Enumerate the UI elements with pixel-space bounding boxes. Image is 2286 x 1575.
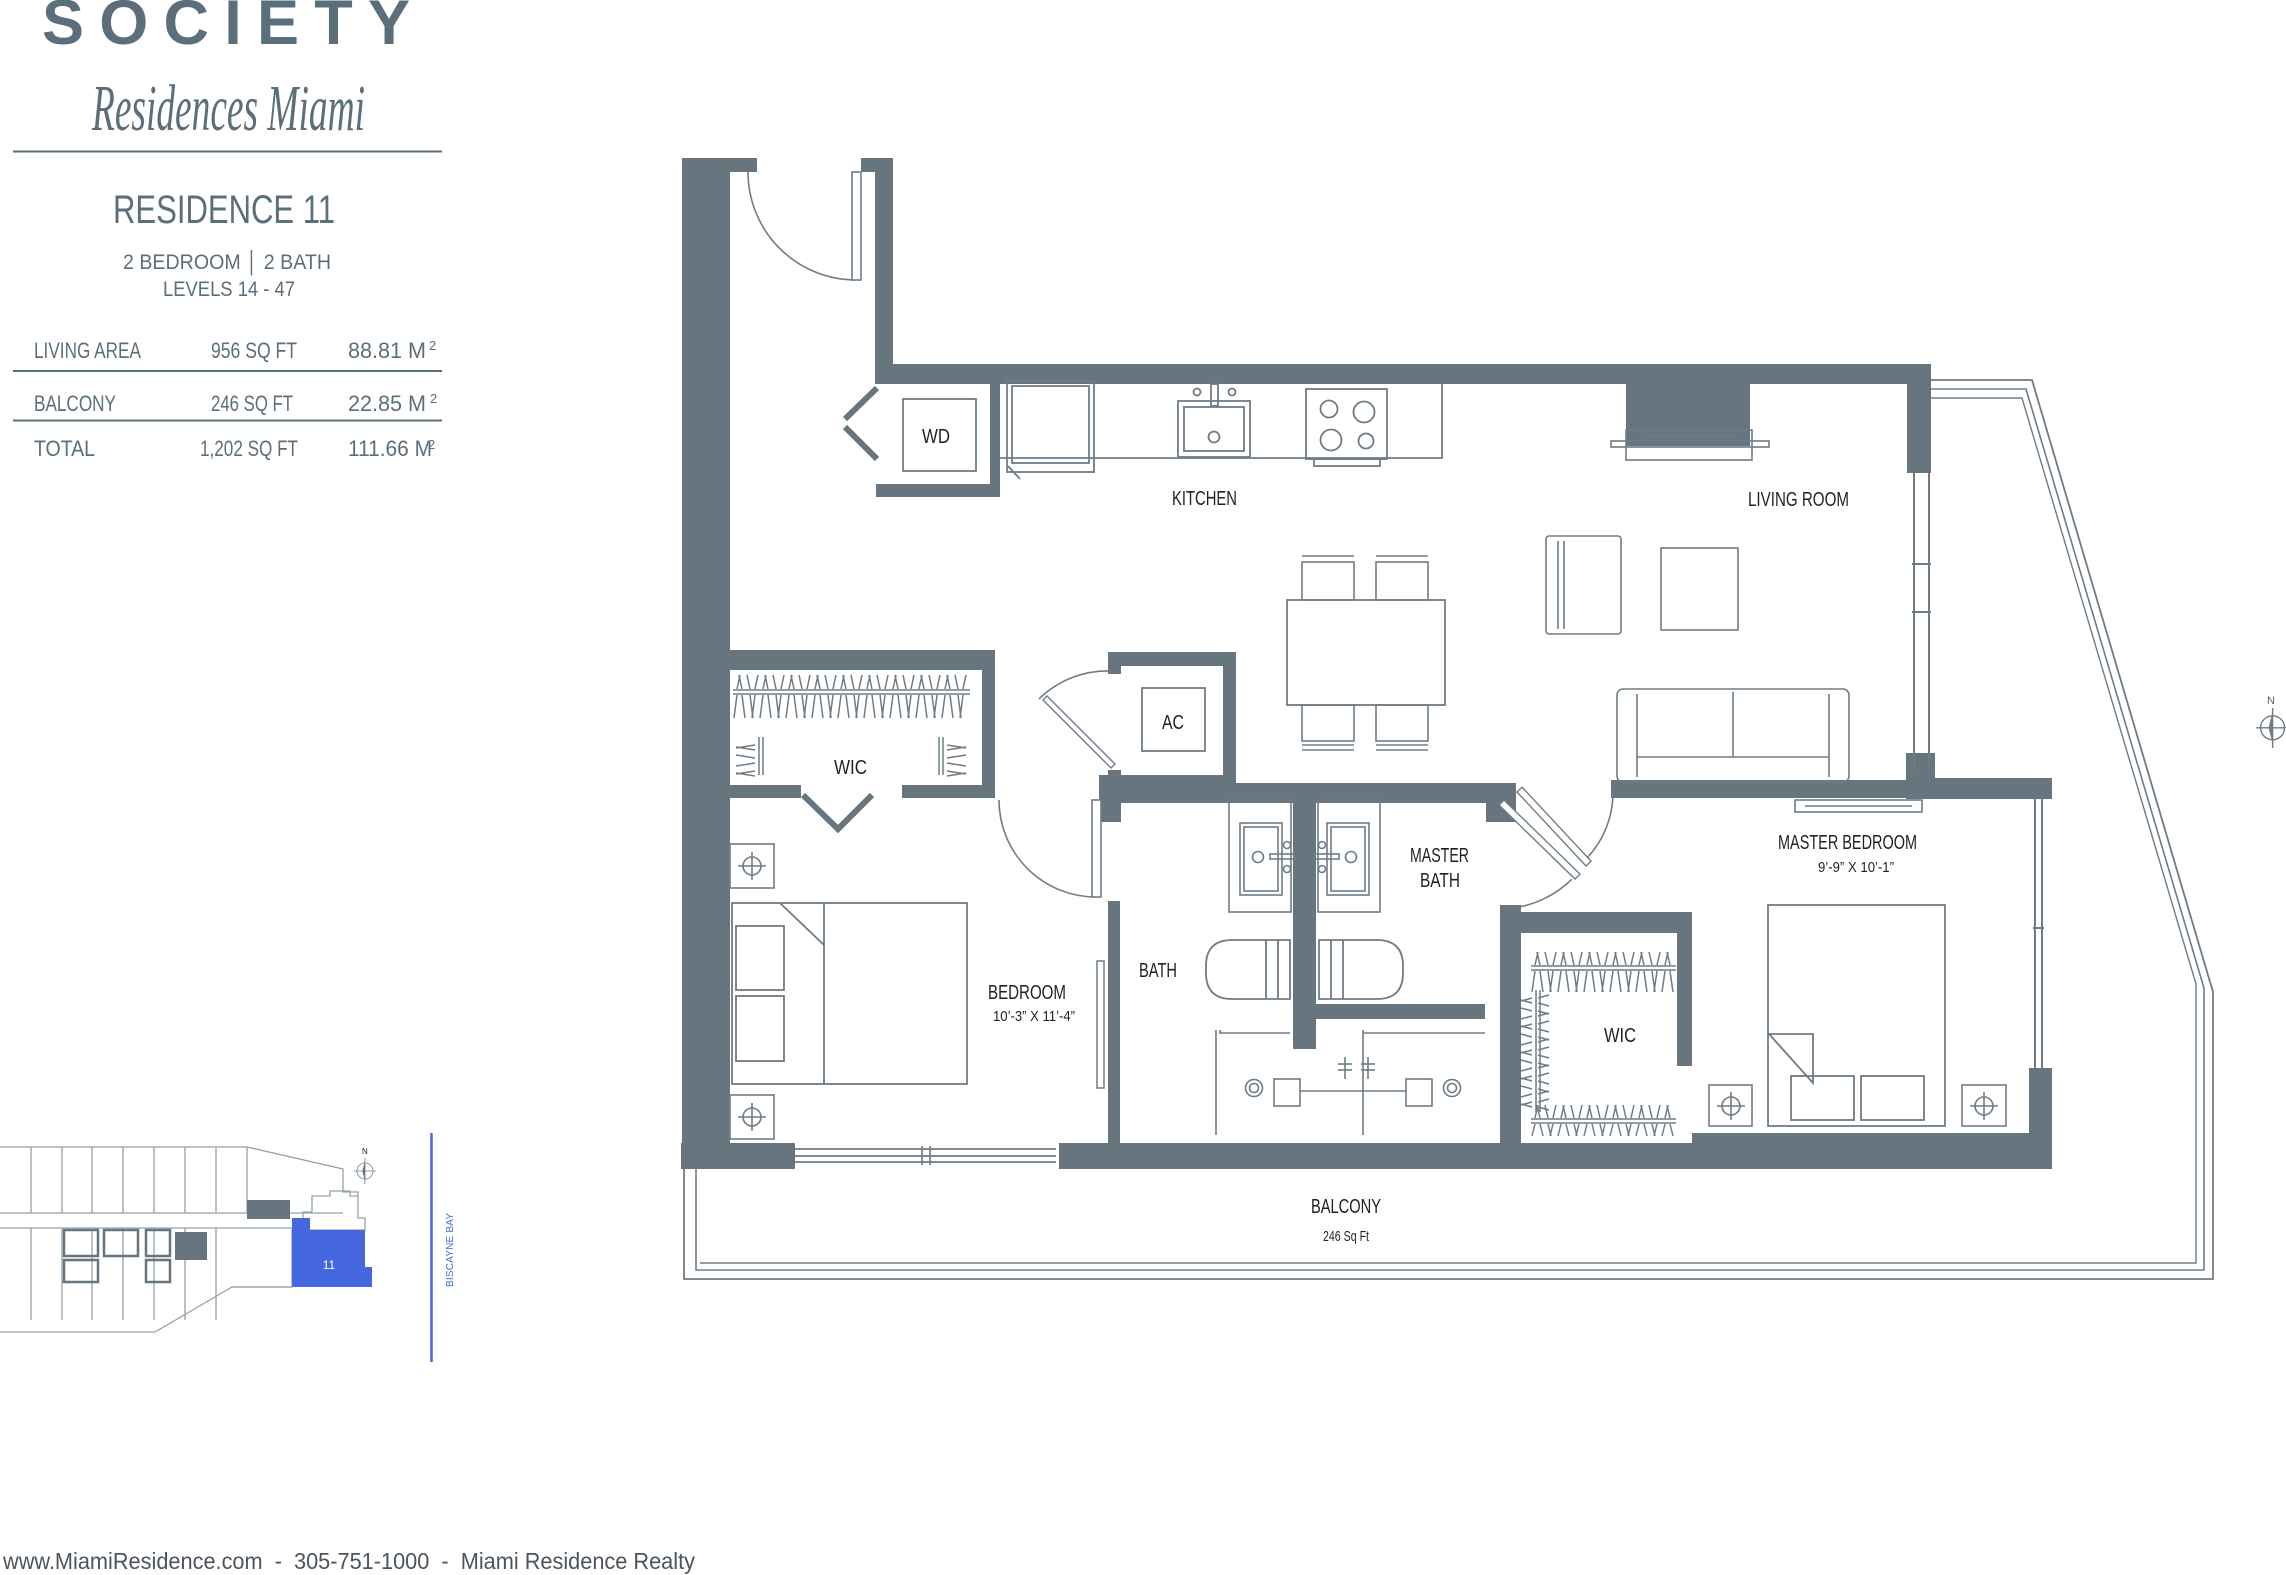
svg-text:Residences Miami: Residences Miami — [91, 72, 365, 145]
svg-text:TOTAL: TOTAL — [34, 436, 95, 461]
svg-text:10’-3” X 11’-4”: 10’-3” X 11’-4” — [993, 1008, 1075, 1025]
svg-text:9’-9” X 10’-1”: 9’-9” X 10’-1” — [1818, 859, 1894, 876]
svg-text:MASTER BEDROOM: MASTER BEDROOM — [1778, 832, 1917, 854]
svg-text:22.85 M: 22.85 M — [348, 391, 426, 416]
svg-text:BATH: BATH — [1139, 960, 1177, 982]
svg-text:WIC: WIC — [834, 757, 867, 779]
svg-text:LIVING AREA: LIVING AREA — [34, 338, 141, 363]
svg-text:BALCONY: BALCONY — [1311, 1196, 1381, 1218]
svg-text:11: 11 — [323, 1258, 336, 1272]
svg-text:WIC: WIC — [1604, 1025, 1636, 1047]
svg-text:BISCAYNE BAY: BISCAYNE BAY — [445, 1213, 456, 1287]
svg-text:246 Sq Ft: 246 Sq Ft — [1323, 1228, 1370, 1245]
svg-text:2: 2 — [429, 338, 436, 353]
svg-text:2 BEDROOM │ 2 BATH: 2 BEDROOM │ 2 BATH — [123, 249, 331, 276]
svg-text:N: N — [2267, 695, 2275, 707]
svg-text:111.66 M: 111.66 M — [348, 436, 432, 461]
svg-text:KITCHEN: KITCHEN — [1172, 488, 1237, 510]
svg-text:MASTER: MASTER — [1410, 845, 1469, 867]
svg-text:www.MiamiResidence.com - 305: www.MiamiResidence.com - 305-751-1000 - … — [2, 1548, 695, 1574]
svg-text:1,202 SQ FT: 1,202 SQ FT — [200, 436, 298, 461]
svg-text:N: N — [362, 1147, 368, 1156]
svg-text:AC: AC — [1162, 712, 1184, 734]
svg-text:BATH: BATH — [1420, 870, 1460, 892]
svg-text:BEDROOM: BEDROOM — [988, 982, 1066, 1004]
svg-text:BALCONY: BALCONY — [34, 391, 116, 416]
svg-text:2: 2 — [428, 437, 435, 452]
svg-text:RESIDENCE 11: RESIDENCE 11 — [113, 188, 335, 232]
svg-text:LIVING ROOM: LIVING ROOM — [1748, 489, 1849, 511]
svg-text:LEVELS 14 - 47: LEVELS 14 - 47 — [163, 278, 295, 301]
svg-text:WD: WD — [922, 426, 950, 448]
svg-text:2: 2 — [430, 391, 437, 406]
svg-text:246 SQ FT: 246 SQ FT — [211, 391, 293, 416]
svg-text:88.81 M: 88.81 M — [348, 338, 426, 363]
svg-text:956 SQ FT: 956 SQ FT — [211, 338, 297, 363]
